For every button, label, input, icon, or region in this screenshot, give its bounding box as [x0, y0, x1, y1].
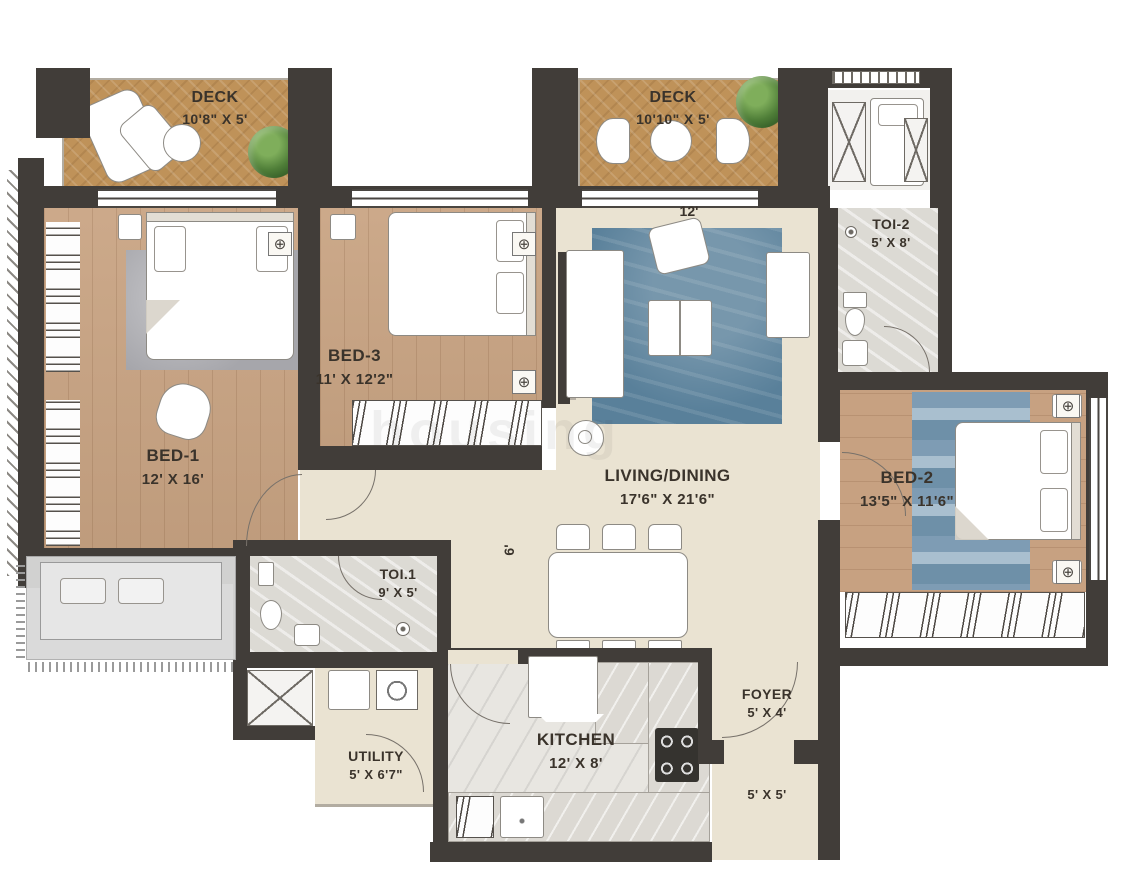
- room-label-passage: 5' X 5': [722, 786, 812, 805]
- wall: [430, 842, 712, 862]
- room-label-utility: UTILITY 5' X 6'7": [326, 746, 426, 785]
- toilet-tank: [258, 562, 274, 586]
- kitchen-door-gap: [448, 650, 518, 664]
- wardrobe-xbox: [904, 118, 928, 182]
- gas-stove: [655, 728, 699, 782]
- wardrobe-hatched: [845, 592, 1085, 638]
- room-label-bed1: BED-1 12' X 16': [78, 444, 268, 490]
- wardrobe-xbox: [832, 102, 866, 182]
- nightstand: [330, 214, 356, 240]
- toilet-tank: [843, 292, 867, 308]
- floor-plan: DECK 10'8" X 5' DECK 10'10" X 5' ⊕ BED-1…: [0, 0, 1123, 870]
- wall: [820, 648, 1108, 666]
- utility-sink: [328, 670, 370, 710]
- pillow: [496, 272, 524, 314]
- ceiling-fan-icon: ⊕: [512, 232, 536, 256]
- window: [1089, 398, 1108, 580]
- kitchen-sink: [500, 796, 544, 838]
- wall: [288, 68, 332, 194]
- wardrobe-chevrons: [46, 222, 80, 372]
- washbasin: [294, 624, 320, 646]
- wall: [820, 372, 1108, 390]
- wall: [433, 652, 448, 842]
- room-label-living: LIVING/DINING 17'6" X 21'6": [575, 464, 760, 510]
- deck-table: [163, 124, 201, 162]
- ceiling-fan-icon: ⊕: [1056, 560, 1080, 584]
- wall: [818, 520, 840, 612]
- wardrobe-chevrons: [46, 400, 80, 546]
- window: [352, 189, 528, 208]
- utility-edge: [315, 804, 433, 807]
- refrigerator: [528, 656, 598, 718]
- headboard: [526, 212, 536, 336]
- fridge-front: [538, 714, 604, 722]
- room-label-kitchen: KITCHEN 12' X 8': [516, 728, 636, 774]
- wall: [233, 726, 315, 740]
- shower-head-icon: [396, 622, 410, 636]
- pillow: [1040, 430, 1068, 474]
- wall: [542, 208, 556, 408]
- room-label-foyer: FOYER 5' X 4': [722, 684, 812, 723]
- washbasin: [842, 340, 868, 366]
- dishwasher-hatched: [456, 796, 494, 838]
- ceiling-fan-icon: ⊕: [1056, 394, 1080, 418]
- rug-fringe: [16, 560, 25, 658]
- sofa: [566, 250, 624, 398]
- wall: [818, 208, 840, 442]
- wall: [532, 68, 578, 194]
- nightstand: [118, 214, 142, 240]
- headboard: [1071, 422, 1081, 540]
- ceiling-fan-icon: ⊕: [512, 370, 536, 394]
- wall: [778, 68, 828, 194]
- wall: [233, 652, 451, 668]
- pillow: [60, 578, 106, 604]
- dining-table: [548, 552, 688, 638]
- dimension-note-12ft: 12': [664, 203, 714, 219]
- duct-shaft-xbox: [247, 670, 313, 726]
- ceiling-fan-icon: ⊕: [268, 232, 292, 256]
- pillow: [154, 226, 186, 272]
- pillow: [1040, 488, 1068, 532]
- washing-machine: [376, 670, 418, 710]
- sofa-bench: [766, 252, 810, 338]
- wall: [698, 740, 724, 764]
- room-label-toi2: TOI-2 5' X 8': [848, 214, 934, 253]
- wall: [818, 612, 840, 860]
- room-label-deck-right: DECK 10'10" X 5': [598, 86, 748, 129]
- pillow: [118, 578, 164, 604]
- room-label-bed2: BED-2 13'5" X 11'6": [842, 466, 972, 512]
- window: [98, 189, 276, 208]
- dining-chair: [556, 524, 590, 550]
- headboard: [146, 212, 294, 222]
- dining-chair: [602, 524, 636, 550]
- room-label-toi1: TOI.1 9' X 5': [350, 564, 446, 603]
- coffee-table: [648, 300, 712, 356]
- wall: [298, 208, 320, 470]
- wall-jag-pattern: [7, 170, 18, 576]
- room-label-deck-left: DECK 10'8" X 5': [140, 86, 290, 129]
- room-label-bed3: BED-3 11' X 12'2": [282, 344, 427, 390]
- grill-pattern: [832, 71, 920, 84]
- wall: [18, 158, 44, 588]
- rug-fringe: [28, 662, 234, 672]
- wall: [794, 740, 818, 764]
- dimension-note-6ft: 6': [501, 535, 517, 565]
- wall: [36, 68, 90, 138]
- watermark: housing: [370, 400, 622, 462]
- dining-chair: [648, 524, 682, 550]
- blanket-fold: [146, 300, 180, 334]
